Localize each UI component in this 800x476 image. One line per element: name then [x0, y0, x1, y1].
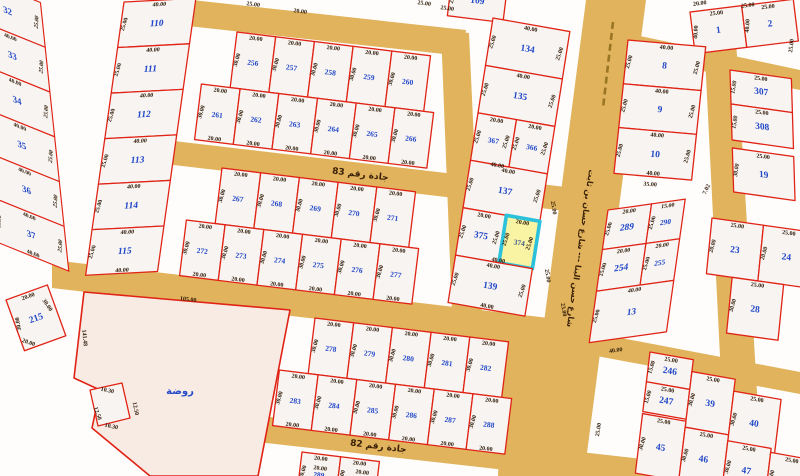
parcel-number-274: 274	[274, 255, 286, 265]
extra-dim-15: 35.00	[643, 182, 657, 189]
parcel-number-284: 284	[328, 401, 340, 411]
parcel-number-287: 287	[444, 415, 456, 425]
dim-top: 40.00	[650, 132, 664, 139]
dim-top: 40.00	[655, 89, 669, 96]
block-block-8910: 840.0025.0025.00940.0025.0025.001040.002…	[614, 40, 706, 181]
parcel-number-45: 45	[655, 443, 666, 455]
parcel-number-307: 307	[754, 87, 769, 99]
dim-top: 40.00	[146, 47, 160, 54]
parcel-number-110: 110	[149, 19, 164, 30]
roda-label: روضة	[166, 386, 194, 397]
parcel-number-10: 10	[650, 150, 661, 161]
parcel-number-115: 115	[117, 246, 132, 257]
parcel-number-47: 47	[741, 466, 752, 476]
parcel-number-262: 262	[250, 115, 262, 125]
parcel-number-263: 263	[289, 119, 301, 129]
parcel-number-270: 270	[348, 208, 360, 218]
parcel-number-256: 256	[247, 58, 259, 68]
parcel-number-261: 261	[211, 110, 223, 120]
parcel-number-23: 23	[730, 245, 741, 256]
parcel-number-260: 260	[402, 77, 414, 87]
parcel-number-19: 19	[759, 170, 769, 181]
parcel-number-290: 290	[659, 217, 672, 228]
parcel-number-112: 112	[136, 110, 151, 121]
parcel-number-28: 28	[750, 304, 761, 315]
dim-top: 40.00	[133, 138, 147, 145]
parcel-number-286: 286	[405, 410, 417, 420]
block-block-right1: 30725.0015.0030825.0015.001925.0030.00	[730, 70, 795, 201]
parcel-number-46: 46	[698, 454, 709, 466]
dim-side: 40.00	[745, 19, 752, 33]
parcel-number-24: 24	[781, 252, 792, 263]
parcel-number-285: 285	[367, 405, 379, 415]
dim-top: 40.00	[152, 2, 166, 9]
parcel-number-13: 13	[626, 307, 637, 318]
parcel-number-255: 255	[654, 257, 667, 268]
parcel-number-259: 259	[363, 72, 375, 82]
parcel-number-39: 39	[705, 399, 716, 411]
parcel-number-281: 281	[441, 358, 453, 368]
dim-top: 40.00	[127, 184, 141, 191]
parcel-number-277: 277	[390, 270, 402, 280]
dim-top: 40.00	[139, 93, 153, 100]
cadastral-map: روضة3240.0025.0025.003340.0025.0025.0034…	[0, 0, 800, 476]
dim-top: 40.00	[659, 45, 673, 52]
parcel-number-265: 265	[366, 129, 378, 139]
parcel-number-267: 267	[232, 194, 244, 204]
extra-dim-23: 20.00	[355, 469, 369, 476]
parcel-number-273: 273	[235, 251, 247, 261]
parcel-number-268: 268	[270, 198, 282, 208]
parcel-number-257: 257	[285, 62, 297, 72]
parcel-number-113: 113	[130, 155, 145, 166]
parcel-number-280: 280	[402, 353, 414, 363]
dim-top: 40.00	[120, 229, 134, 236]
parcel-number-283: 283	[289, 396, 301, 406]
parcel-number-264: 264	[327, 124, 339, 134]
parcel-number-269: 269	[309, 203, 321, 213]
parcel-number-111: 111	[143, 64, 158, 75]
parcel-number-266: 266	[405, 134, 417, 144]
dim-side: 40.00	[693, 25, 700, 39]
parcel-number-258: 258	[324, 67, 336, 77]
dim-bottom: 40.00	[115, 268, 129, 275]
parcel-number-282: 282	[480, 363, 492, 373]
parcel-number-288: 288	[483, 420, 495, 430]
parcel-number-275: 275	[312, 260, 324, 270]
parcel-number-271: 271	[387, 213, 399, 223]
parcel-number-272: 272	[196, 246, 208, 256]
dim-bottom: 40.00	[646, 171, 660, 178]
parcel-number-40: 40	[749, 419, 760, 431]
parcel-number-276: 276	[351, 265, 363, 275]
parcel-number-279: 279	[363, 348, 375, 358]
parcel-number-278: 278	[325, 344, 337, 354]
parcel-number-114: 114	[123, 201, 138, 212]
map-canvas[interactable]: روضة3240.0025.0025.003340.0025.0025.0034…	[0, 0, 800, 476]
parcel-number-308: 308	[755, 121, 770, 133]
